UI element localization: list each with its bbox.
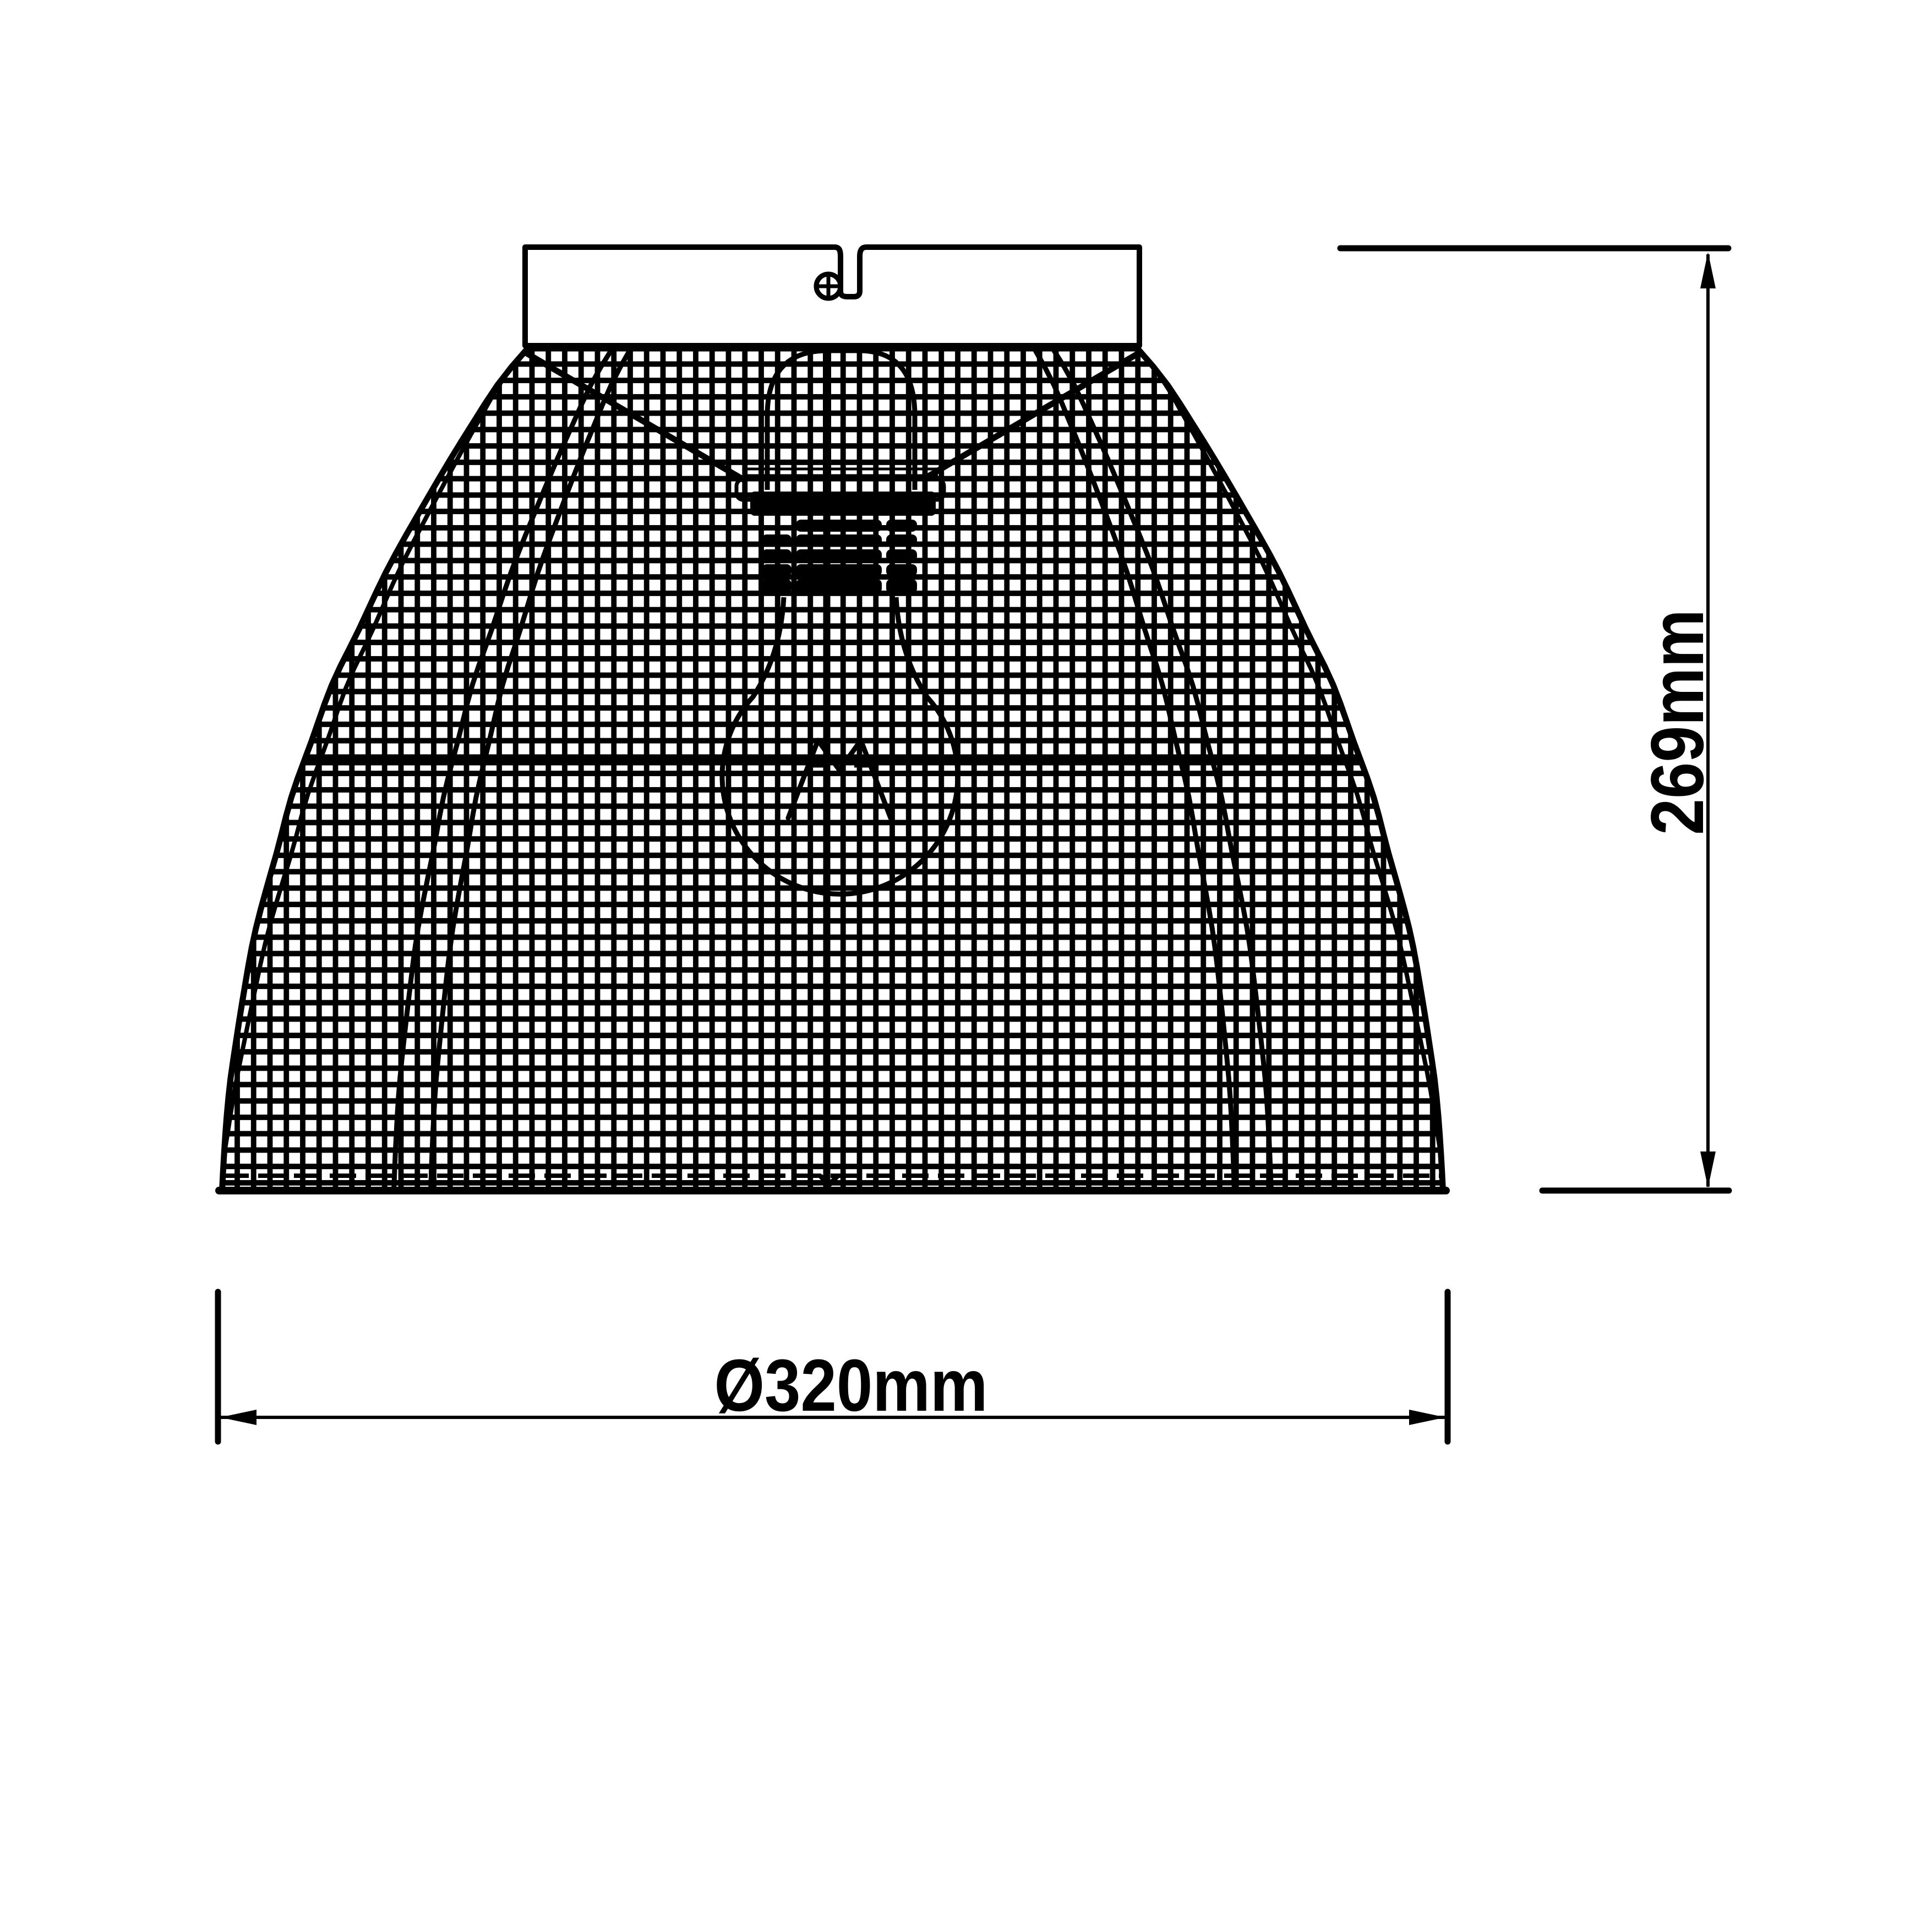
svg-text:Ø320mm: Ø320mm: [714, 1345, 988, 1427]
svg-text:269mm: 269mm: [1635, 609, 1719, 835]
